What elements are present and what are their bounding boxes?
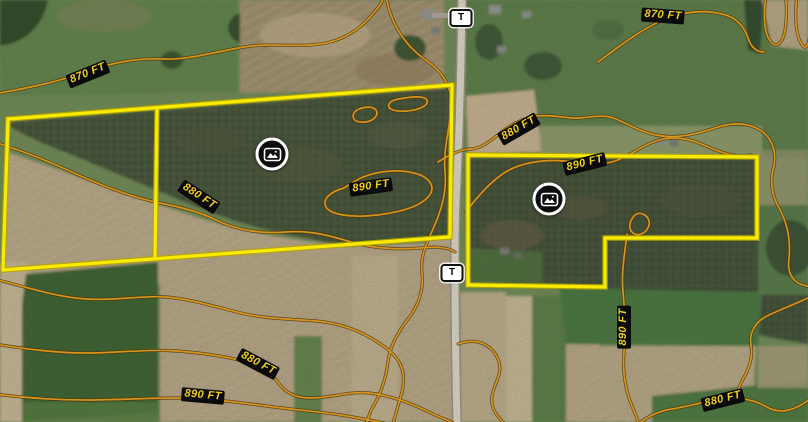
route-shield-text: T xyxy=(458,13,464,23)
route-marker-t-north: T xyxy=(450,9,473,27)
image-icon xyxy=(540,192,558,206)
parcel-boundary-east[interactable] xyxy=(468,155,757,287)
map-viewport[interactable]: 870 FT 870 FT 880 FT 890 FT 880 FT 890 F… xyxy=(0,0,808,422)
contour-elevation-label: 890 FT xyxy=(617,305,631,348)
photo-marker-east-parcel[interactable] xyxy=(533,183,566,216)
parcel-overlay xyxy=(0,0,808,422)
contour-elevation-label: 870 FT xyxy=(641,8,685,25)
route-shield-text: T xyxy=(449,268,455,278)
photo-marker-west-parcel[interactable] xyxy=(256,138,289,171)
image-icon xyxy=(263,147,281,161)
parcel-divider-line[interactable] xyxy=(155,108,157,258)
route-marker-t-south: T xyxy=(441,264,464,282)
